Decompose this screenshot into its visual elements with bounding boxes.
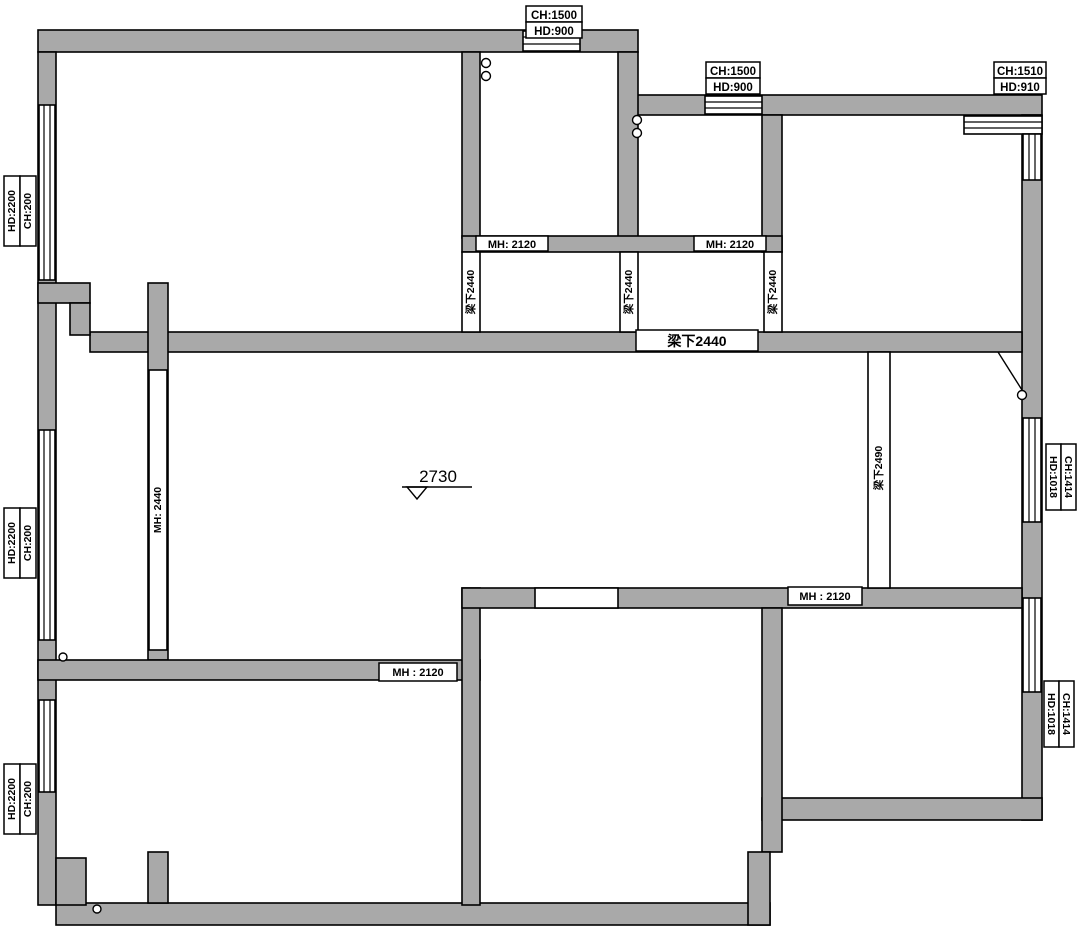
- window-left-upper: [39, 105, 55, 280]
- window-label-top-center-l1: CH:1500: [531, 10, 577, 22]
- window-top-right: [705, 96, 762, 114]
- wall-bottom-divider-vertical: [462, 588, 480, 905]
- window-label-right-lower-l2: CH:1414: [1060, 693, 1072, 735]
- beam-strip-3: 梁下2440: [764, 252, 782, 332]
- wall-topmid2-right: [762, 115, 782, 252]
- window-label-left-lower-l1: HD:2200: [6, 778, 18, 820]
- window-label-left-lower: HD:2200 CH:200: [4, 764, 36, 834]
- corner-chamfer-line: [998, 352, 1022, 390]
- fixture-circle-2b: [633, 129, 642, 138]
- door-label-bottom-right: MH : 2120: [788, 587, 862, 605]
- beam-label-right: 梁下2490: [872, 446, 885, 492]
- window-label-left-middle-l2: CH:200: [22, 525, 34, 561]
- wall-bottom-step: [748, 852, 770, 925]
- level-mark-triangle: [407, 487, 427, 499]
- window-label-right-lower: HD:1018 CH:1414: [1044, 681, 1074, 747]
- wall-step-vertical: [618, 52, 638, 238]
- door-label-top-left-text: MH: 2120: [488, 239, 536, 251]
- window-left-middle: [39, 430, 55, 640]
- window-label-top-right-l2: HD:900: [713, 82, 753, 94]
- window-label-top-corner-l2: HD:910: [1000, 82, 1040, 94]
- fixture-circle-3: [1018, 391, 1027, 400]
- wall-stub-horizontal: [38, 283, 90, 303]
- window-label-left-upper-l2: CH:200: [22, 193, 34, 229]
- window-label-left-middle-l1: HD:2200: [6, 522, 18, 564]
- door-label-bottom-left-text: MH : 2120: [392, 667, 443, 679]
- wall-bottomleft-corner-block: [56, 858, 86, 905]
- window-label-right-lower-l1: HD:1018: [1045, 693, 1057, 735]
- door-opening-living-left: MH: 2440: [149, 370, 167, 650]
- wall-bottom-outer: [56, 903, 770, 925]
- window-label-right-upper: HD:1018 CH:1414: [1046, 444, 1076, 510]
- window-label-right-upper-l1: HD:1018: [1047, 456, 1059, 498]
- fixture-circle-5: [93, 905, 101, 913]
- window-label-left-middle: HD:2200 CH:200: [4, 508, 36, 578]
- fixture-circle-1b: [482, 72, 491, 81]
- window-right-upper: [1023, 418, 1041, 522]
- beam-label-horizontal-box: 梁下2440: [636, 330, 758, 351]
- walls: [38, 30, 1042, 925]
- door-label-top-left: MH: 2120: [476, 236, 548, 251]
- wall-topleft-room-right: [462, 52, 480, 238]
- level-mark: 2730: [402, 467, 472, 499]
- wall-bottomright-room-left: [762, 608, 782, 852]
- fixture-circle-4: [59, 653, 67, 661]
- beam-label-2: 梁下2440: [622, 270, 635, 316]
- window-label-left-upper: HD:2200 CH:200: [4, 176, 36, 246]
- door-label-bottom-left: MH : 2120: [379, 663, 457, 681]
- wall-top-right: [630, 95, 1042, 115]
- fixture-circle-1a: [482, 59, 491, 68]
- wall-stub-vertical: [70, 303, 90, 335]
- beam-strip-right: 梁下2490: [868, 352, 890, 588]
- wall-main-horizontal: [90, 332, 1022, 352]
- window-label-top-corner-l1: CH:1510: [997, 66, 1043, 78]
- window-label-right-upper-l2: CH:1414: [1062, 456, 1074, 498]
- wall-opening-pass: [535, 588, 618, 608]
- window-label-left-lower-l2: CH:200: [22, 781, 34, 817]
- window-top-right-corner: [964, 116, 1042, 180]
- window-label-left-upper-l1: HD:2200: [6, 190, 18, 232]
- beam-label-horizontal: 梁下2440: [666, 333, 726, 349]
- beam-strip-2: 梁下2440: [620, 252, 638, 332]
- window-right-lower: [1023, 598, 1041, 692]
- door-label-top-right: MH: 2120: [694, 236, 766, 251]
- window-label-top-right: CH:1500 HD:900: [706, 62, 760, 94]
- fixture-circle-2a: [633, 116, 642, 125]
- window-label-top-right-l1: CH:1500: [710, 66, 756, 78]
- floor-plan-svg: 梁下2440 梁下2440 梁下2440 梁下2490 梁下2440 MH: 2…: [0, 0, 1080, 933]
- door-label-living-left: MH: 2440: [152, 487, 164, 533]
- beam-strip-1: 梁下2440: [462, 252, 480, 332]
- floor-plan-canvas: 梁下2440 梁下2440 梁下2440 梁下2490 梁下2440 MH: 2…: [0, 0, 1080, 933]
- wall-bottom-stub: [148, 852, 168, 903]
- window-label-top-corner: CH:1510 HD:910: [994, 62, 1046, 94]
- beam-label-1: 梁下2440: [464, 270, 477, 316]
- door-label-top-right-text: MH: 2120: [706, 239, 754, 251]
- wall-bottomright-room-bottom: [762, 798, 1042, 820]
- door-label-bottom-right-text: MH : 2120: [799, 591, 850, 603]
- window-label-top-center: CH:1500 HD:900: [526, 6, 582, 38]
- window-left-lower: [39, 700, 55, 792]
- window-label-top-center-l2: HD:900: [534, 26, 574, 38]
- beam-label-3: 梁下2440: [766, 270, 779, 316]
- level-mark-value: 2730: [419, 467, 457, 486]
